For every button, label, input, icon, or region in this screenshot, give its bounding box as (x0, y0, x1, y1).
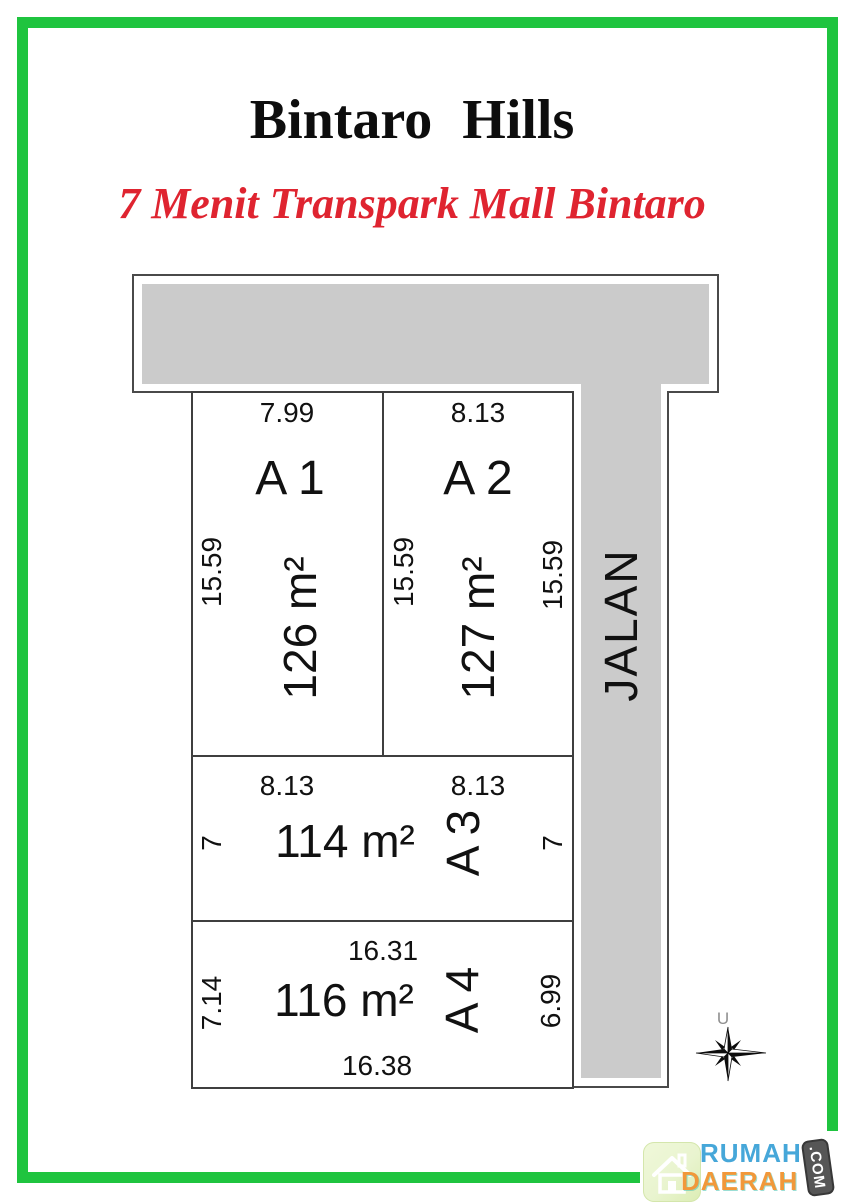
plot-a3-top-left-dimension: 8.13 (260, 772, 315, 800)
plot-a1-top-dimension: 7.99 (260, 399, 315, 427)
plot-a3-area: 114 m² (275, 818, 415, 864)
compass-rose-icon (684, 1023, 772, 1085)
plot-a4-area: 116 m² (274, 977, 414, 1023)
road-label: JALAN (598, 548, 644, 701)
plot-a4-top-dimension: 16.31 (348, 937, 418, 965)
plot-a3-right-dimension: 7 (539, 835, 567, 851)
plot-a4-label: A 4 (439, 967, 485, 1034)
plot-a2-label: A 2 (443, 455, 512, 503)
plot-a2-right-dimension: 15.59 (539, 540, 567, 610)
logo-text-daerah: DAERAH (681, 1168, 798, 1194)
plot-a2-left-dimension: 15.59 (390, 537, 418, 607)
plot-a4-bottom-dimension: 16.38 (342, 1052, 412, 1080)
plot-a3-left-dimension: 7 (198, 835, 226, 851)
plot-a1-left-dimension: 15.59 (198, 537, 226, 607)
plot-a2-top-dimension: 8.13 (451, 399, 506, 427)
plot-a4-right-dimension: 6.99 (537, 974, 565, 1029)
plot-a2-area: 127 m² (455, 556, 501, 699)
plot-a3-top-right-dimension: 8.13 (451, 772, 506, 800)
logo-text-rumah: RUMAH (700, 1140, 802, 1166)
plot-a1-label: A 1 (255, 455, 324, 503)
watermark-logo: RUMAH DAERAH .COM (640, 1131, 845, 1204)
logo-dot-com-badge: .COM (801, 1138, 836, 1197)
plot-a3-label: A 3 (440, 810, 486, 877)
plot-a4-left-dimension: 7.14 (198, 976, 226, 1031)
site-plan-page: Bintaro Hills 7 Menit Transpark Mall Bin… (0, 0, 850, 1204)
plot-a1-area: 126 m² (277, 556, 323, 699)
